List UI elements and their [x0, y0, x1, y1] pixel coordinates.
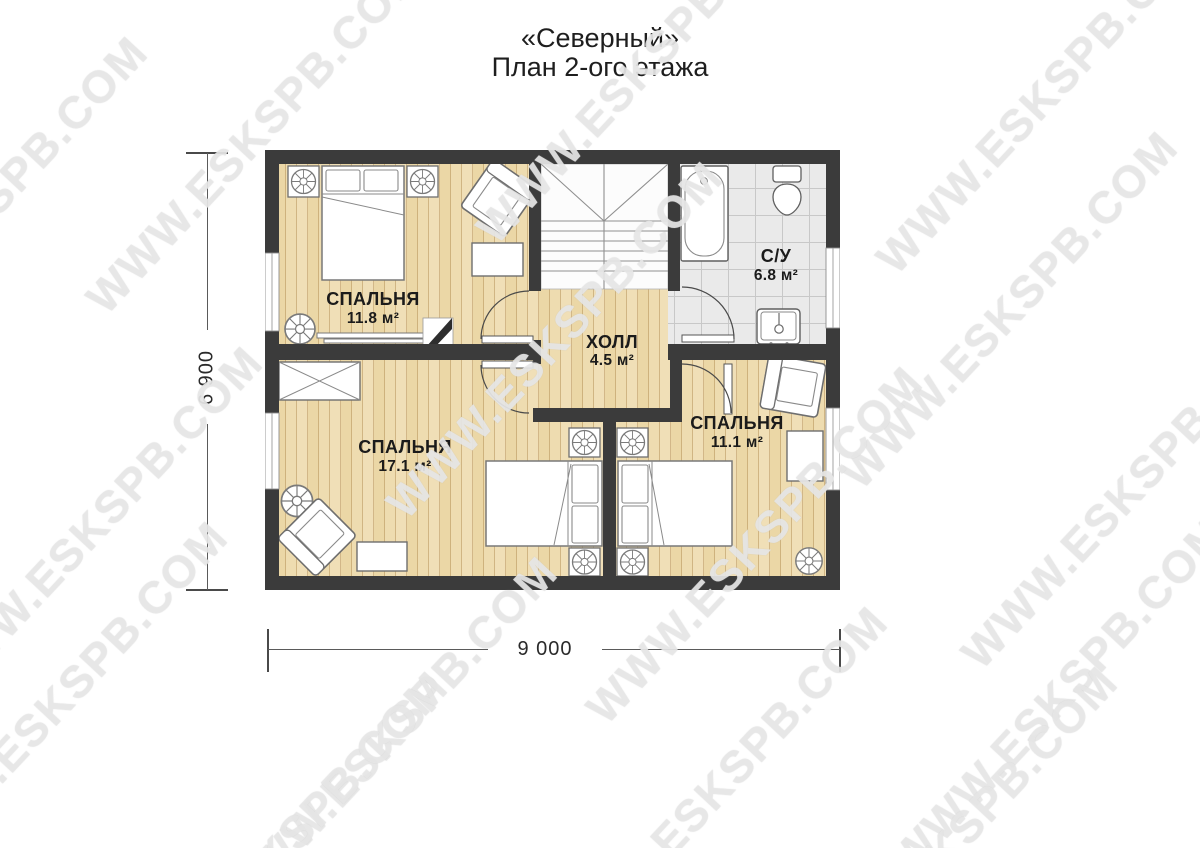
rug-corner-fold — [423, 318, 453, 347]
wall — [265, 150, 279, 590]
dimension-line — [207, 424, 208, 590]
double-bed — [618, 461, 732, 546]
dimension-line — [207, 153, 208, 330]
watermark: WWW.ESKSPB.COM — [0, 26, 159, 404]
dimension-line — [602, 649, 840, 650]
toilet-icon — [773, 166, 801, 215]
pillow — [572, 465, 598, 503]
door-leaf — [482, 336, 533, 343]
room-area-bedroom-left: 17.1 м² — [378, 458, 431, 475]
watermark: WWW.ESKSPB.COM — [0, 336, 274, 714]
wall — [533, 340, 541, 364]
sink-icon — [757, 309, 800, 346]
room-label-hall: ХОЛЛ — [586, 332, 638, 352]
dimension-tick — [839, 629, 841, 672]
wall — [826, 150, 840, 590]
watermark: WWW.ESKSPB.COM — [101, 661, 458, 848]
armchair — [760, 354, 826, 417]
page-title: «Северный» — [0, 24, 1200, 53]
window — [265, 413, 279, 489]
wall — [529, 150, 541, 291]
dimension-value-width: 9 000 — [490, 638, 600, 661]
wardrobe — [279, 362, 360, 400]
room-label-bathroom: С/У — [761, 246, 792, 266]
nightstand-lamp-icon — [292, 170, 316, 194]
window — [826, 408, 840, 490]
page-subtitle: План 2-ого этажа — [0, 53, 1200, 82]
side-table — [787, 431, 823, 481]
room-label-bedroom-right: СПАЛЬНЯ — [690, 413, 783, 433]
double-bed — [322, 166, 404, 280]
room-label-bedroom-top: СПАЛЬНЯ — [326, 289, 419, 309]
side-table — [472, 243, 523, 276]
watermark: WWW.ESKSPB.COM — [771, 656, 1128, 848]
nightstand-lamp-icon — [573, 431, 597, 455]
wall — [668, 150, 680, 291]
nightstand-lamp-icon — [621, 550, 645, 574]
nightstand-lamp-icon — [411, 170, 435, 194]
side-table — [357, 542, 407, 571]
room-area-hall: 4.5 м² — [590, 352, 634, 369]
double-bed — [486, 461, 602, 546]
door-leaf — [482, 361, 533, 368]
pillow — [622, 465, 648, 503]
bathtub-icon — [681, 166, 728, 261]
window — [265, 253, 279, 331]
dimension-line — [268, 649, 488, 650]
pillow — [622, 506, 648, 543]
dimension-tick — [267, 629, 269, 672]
watermark: WWW.ESKSPB.COM — [831, 121, 1188, 499]
room-area-bedroom-right: 11.1 м² — [711, 434, 763, 451]
nightstand-lamp-icon — [621, 431, 645, 455]
pillow — [326, 170, 360, 191]
wall — [668, 344, 826, 360]
wall — [265, 150, 840, 164]
floorplan-page: «Северный» План 2-ого этажа — [0, 0, 1200, 848]
pillow — [572, 506, 598, 543]
nightstand-lamp-icon — [573, 550, 597, 574]
room-area-bathroom: 6.8 м² — [754, 267, 798, 284]
wall — [265, 576, 840, 590]
wall — [670, 360, 682, 410]
plant-icon — [285, 314, 315, 344]
room-area-bedroom-top: 11.8 м² — [347, 310, 399, 327]
wall — [603, 415, 616, 576]
title-block: «Северный» План 2-ого этажа — [0, 24, 1200, 82]
window — [826, 248, 840, 328]
watermark: WWW.ESKSPB.COM — [541, 596, 898, 848]
wall — [265, 344, 541, 360]
watermark: WWW.ESKSPB.COM — [881, 506, 1200, 848]
watermark: WWW.ESKSPB.COM — [211, 546, 568, 848]
floor-plan: СПАЛЬНЯ 11.8 м² СПАЛЬНЯ 17.1 м² СПАЛЬНЯ … — [265, 150, 840, 590]
dimension-value-height: 6 900 — [196, 317, 219, 439]
watermark: WWW.ESKSPB.COM — [951, 301, 1200, 679]
pillow — [364, 170, 398, 191]
watermark: WWW.ESKSPB.COM — [0, 511, 239, 848]
door-leaf — [682, 335, 734, 342]
room-label-bedroom-left: СПАЛЬНЯ — [358, 437, 451, 457]
plant-icon — [796, 548, 822, 574]
